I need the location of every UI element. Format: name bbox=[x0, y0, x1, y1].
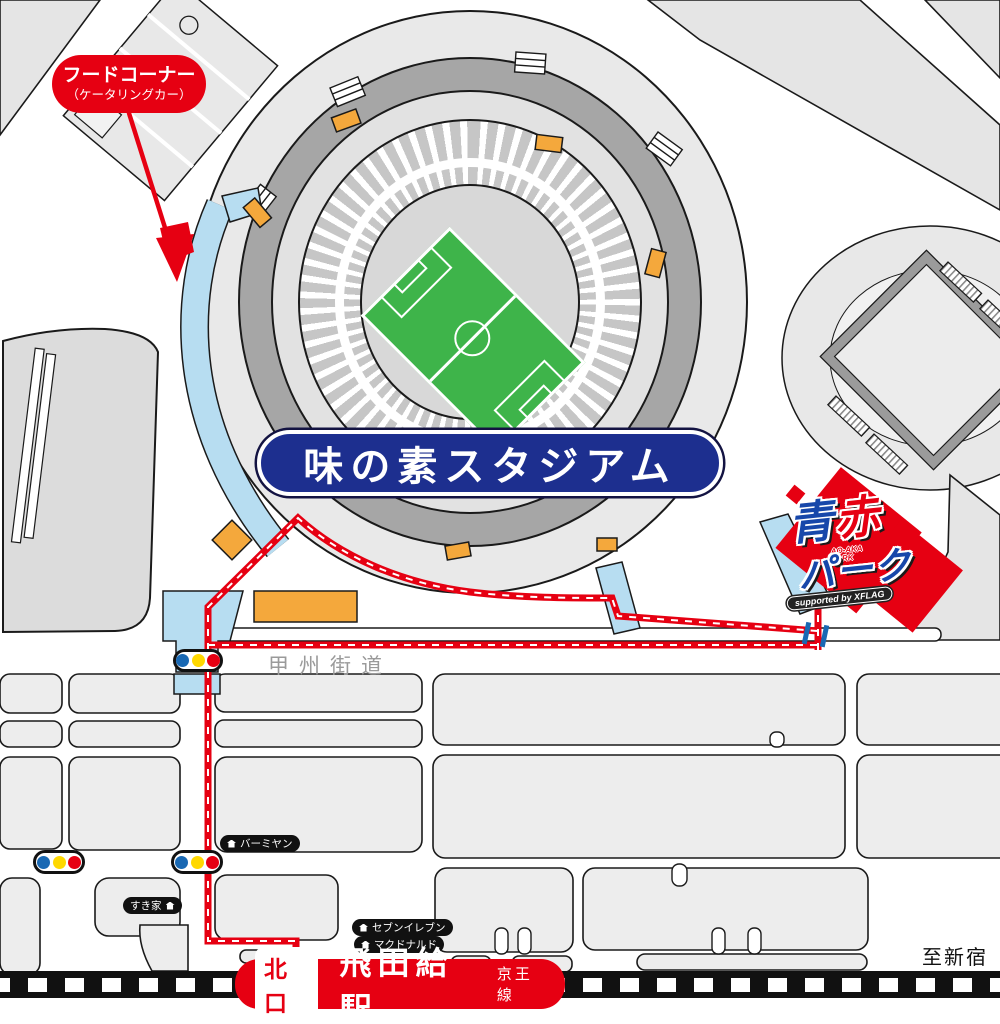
logo-aka: 赤 bbox=[832, 493, 881, 542]
shop-seven-eleven: セブンイレブン bbox=[352, 919, 453, 936]
signal-red-icon bbox=[207, 654, 220, 667]
logo-ao: 青 bbox=[786, 498, 835, 547]
signal-red-icon bbox=[68, 856, 81, 869]
stadium-name: 味の素スタジアム bbox=[303, 434, 676, 492]
shop-label: バーミヤン bbox=[240, 836, 293, 851]
sidewalk-strip bbox=[215, 628, 941, 641]
traffic-light bbox=[171, 850, 223, 874]
food-corner-line1: フードコーナー bbox=[52, 64, 206, 88]
koshu-kaido-label: 甲州街道 bbox=[268, 650, 392, 680]
to-shinjuku-label: 至新宿 bbox=[922, 941, 988, 970]
signal-yellow-icon bbox=[191, 856, 204, 869]
signal-blue-icon bbox=[176, 654, 189, 667]
signal-blue-icon bbox=[37, 856, 50, 869]
house-icon bbox=[359, 924, 368, 932]
ao-aka-park-logo: 青 赤 AO-AKA PARK パーク supported by XFLAG bbox=[768, 458, 973, 627]
north-exit-badge: 北口 bbox=[255, 947, 318, 1021]
food-corner-bubble: フードコーナー （ケータリングカー） bbox=[52, 55, 206, 113]
traffic-light bbox=[173, 649, 223, 672]
shop-label: すき家 bbox=[130, 898, 162, 913]
house-icon bbox=[166, 902, 175, 910]
shop-sukiya: すき家 bbox=[123, 897, 182, 914]
signal-blue-icon bbox=[175, 856, 188, 869]
food-corner-line2: （ケータリングカー） bbox=[52, 88, 206, 104]
station-name: 飛田給駅 bbox=[340, 938, 475, 1024]
shop-label: セブンイレブン bbox=[372, 920, 446, 935]
station-line: 京王線 bbox=[497, 963, 545, 1005]
stadium-name-banner: 味の素スタジアム bbox=[257, 430, 723, 496]
food-corner-arrow bbox=[128, 110, 194, 282]
tobitakyu-station: 北口 飛田給駅 京王線 bbox=[235, 959, 565, 1009]
signal-yellow-icon bbox=[192, 654, 205, 667]
house-icon bbox=[227, 840, 236, 848]
stadium-access-map: フードコーナー （ケータリングカー） 味の素スタジアム 甲州街道 青 赤 AO-… bbox=[0, 0, 1000, 1024]
orange-building bbox=[254, 591, 357, 622]
stadium-stairs bbox=[242, 52, 682, 220]
walking-route bbox=[208, 518, 829, 968]
shop-bamiyan: バーミヤン bbox=[220, 835, 300, 852]
traffic-light bbox=[33, 850, 85, 874]
signal-yellow-icon bbox=[53, 856, 66, 869]
signal-red-icon bbox=[206, 856, 219, 869]
